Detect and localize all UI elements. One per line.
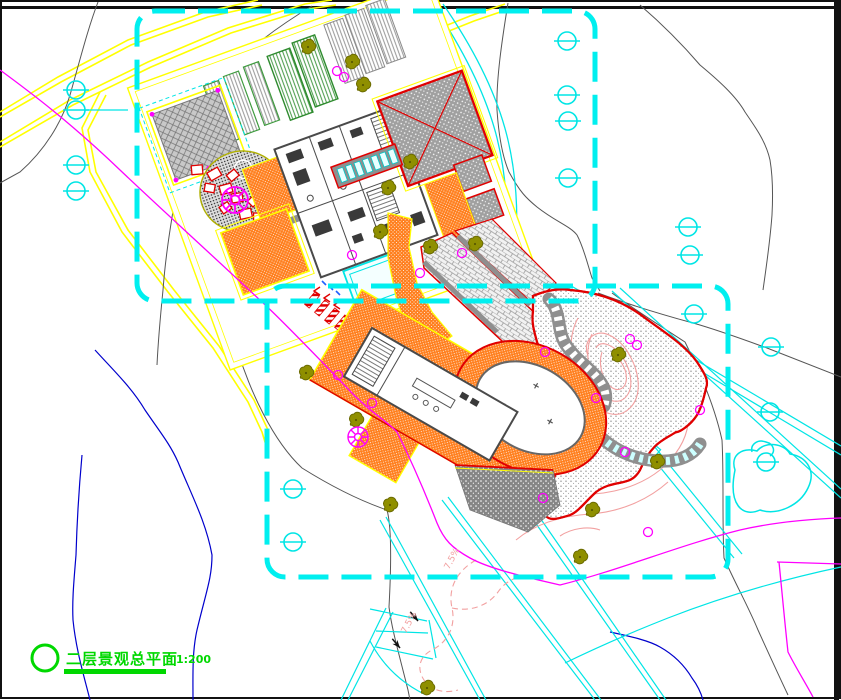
drawing-title: 二层景观总平面 xyxy=(66,650,178,668)
title-block: 二层景观总平面 1:200 xyxy=(32,645,211,674)
title-bullet-circle xyxy=(32,645,58,671)
cad-site-plan: 7.5% 7.5% 二层景观总平面 1:200 xyxy=(0,0,841,700)
slope-label-2: 7.5% xyxy=(400,610,420,635)
drawing-scale: 1:200 xyxy=(176,653,211,666)
south-paving-triangle xyxy=(455,465,560,532)
title-underline xyxy=(64,669,166,674)
site-plan-canvas: 7.5% 7.5% 二层景观总平面 1:200 xyxy=(0,0,841,700)
slope-label-1: 7.5% xyxy=(443,546,463,571)
